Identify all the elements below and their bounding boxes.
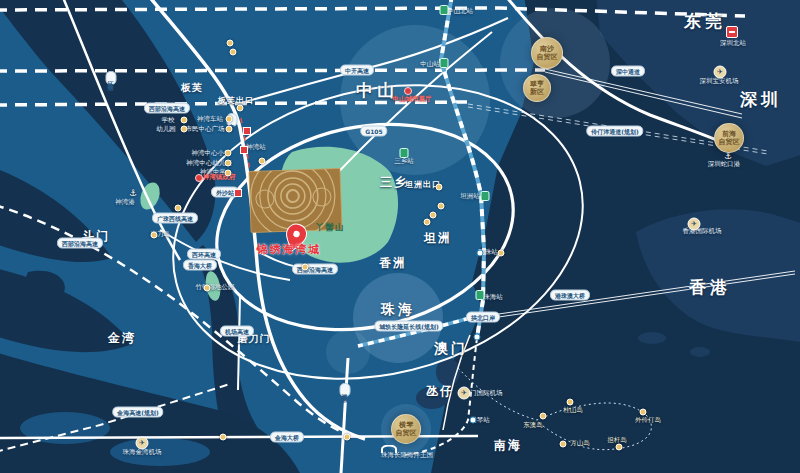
gold-icon [225,160,232,167]
green-icon [481,191,490,201]
road-guangzhuxixian: 广珠西线高速 [152,213,198,224]
road-honghe-bridge: 洪鹤大桥 [340,383,351,397]
gold-icon [204,285,211,292]
road-xianghai-bridge: 香海大桥 [183,260,217,271]
zone-cuiheng: 翠亨新区 [523,74,551,102]
gold-icon [344,434,351,441]
green-icon [440,58,449,68]
dolphin-icon [381,445,397,454]
green-icon [476,290,485,300]
gold-icon [175,205,182,212]
station-shenzhenbei: 深圳北站 [720,39,746,48]
road-jinhai-bridge: 金海大桥 [270,432,304,443]
road-xibuyanhai: 西部沿海高速 [144,103,190,114]
gold-icon [498,250,505,257]
region-zhuhai: 珠海 [381,301,415,319]
plane-icon: ✈ [714,66,727,79]
road-jiangzhu: 江珠高速 [106,71,117,85]
station-zhongshanbei: 中山北站 [447,7,473,16]
road-jinhai-planned: 金海高速(规划) [112,407,163,418]
region-macau: 澳门 [434,340,468,358]
plane-icon: ✈ [688,218,701,231]
gold-icon [436,184,443,191]
region-sanxiang: 三乡 [380,174,408,191]
road-shenzhong-link: 深中通道 [611,66,645,77]
road-g105: G105 [360,126,387,137]
zone-qianhai: 前海自贸区 [714,123,744,153]
island-wanshan: 万山岛 [570,439,590,448]
gold-icon [181,126,188,133]
road-xibuyanhai-2: 西部沿海高速 [57,238,103,249]
rail-icon [477,250,484,257]
green-icon [400,148,409,158]
poi-zhuyin-park: 竹银湿地公园 [196,283,235,292]
project-name: 锦绣海湾城 [257,242,322,257]
gold-icon [430,212,437,219]
gongbei-port: 拱北口岸 [466,312,500,323]
reddot-icon [195,174,203,182]
rail-icon [470,417,477,424]
reddot-icon [404,87,412,95]
poi-school: 学校 [162,116,175,125]
gold-icon [226,116,233,123]
red-poi-zhongshan-hall: 中山城市展厅 [393,95,432,104]
gold-icon [226,126,233,133]
green-icon [440,5,449,15]
gold-icon [181,117,188,124]
mountain-yajishan: 丫髻山 [316,222,345,234]
gold-icon [230,49,237,56]
redsq-icon [234,189,242,197]
rail-icon [474,334,481,341]
region-tanzhou: 坦洲 [424,230,452,247]
poi-shenwan-bus: 神湾车站 [197,115,223,124]
gold-icon [560,441,567,448]
gold-icon [424,219,431,226]
redsq-icon [243,127,251,135]
location-map: 东莞深圳香港中山珠海澳门斗门金湾南海三乡坦洲香洲氹仔板芙磨刀门板芙出口坦洲出口西… [0,0,800,473]
gold-icon [220,434,227,441]
gold-icon [225,170,232,177]
region-banfu: 板芙 [181,81,203,95]
station-zhuhai: 珠海站 [483,293,503,302]
region-jinwan: 金湾 [108,330,136,347]
zone-hengqin: 横琴自贸区 [391,414,421,444]
plane-icon: ✈ [136,437,149,450]
label-layer: 东莞深圳香港中山珠海澳门斗门金湾南海三乡坦洲香洲氹仔板芙磨刀门板芙出口坦洲出口西… [0,0,800,473]
road-xibuyanhai-3: 西部沿海高速 [292,264,338,275]
gold-icon [640,409,647,416]
region-dongguan: 东莞 [684,10,726,33]
road-lingdingyang: 伶仃洋通道(规划) [586,126,643,137]
gold-icon [259,158,266,165]
region-xiangzhou: 香洲 [379,255,407,272]
island-guishan: 桂山岛 [563,406,583,415]
road-zhongkai: 中开高速 [340,65,374,76]
island-dongao: 东澳岛 [523,421,543,430]
exit-banfu: 板芙出口 [218,95,254,106]
plane-icon: ✈ [458,387,471,400]
station-tanzhou: 坦洲站 [460,192,480,201]
gold-icon [567,399,574,406]
region-nanhai: 南海 [494,437,522,454]
road-hzmb: 港珠澳大桥 [550,290,590,301]
anchor-icon: ⚓ [129,189,137,198]
road-xihuan: 西环高速 [187,249,221,260]
road-jichang: 机场高速 [220,326,254,337]
island-wailingding: 外伶仃岛 [635,416,661,425]
gold-icon [151,232,158,239]
region-shenzhen: 深圳 [740,88,782,111]
gold-icon [302,264,309,271]
gold-icon [227,40,234,47]
poi-civic-plaza: 市民中心广场 [186,125,225,134]
redsq-icon [240,146,248,154]
gold-icon [438,203,445,210]
gold-icon [237,105,244,112]
anchor-icon: ⚓ [724,152,732,161]
station-shenwan: 神湾站 [246,143,266,152]
poi-kindergarten: 幼儿园 [156,125,176,134]
zone-nansha: 南沙自贸区 [531,37,563,69]
poi-shekou-port: 深圳蛇口港 [708,160,741,169]
region-dangzai: 氹仔 [426,383,454,400]
station-zhongshan: 中山站 [420,60,440,69]
rail-changlong-ext: 城轨长隆延长线(规划) [374,321,443,332]
gold-icon [540,413,547,420]
gold-icon [616,444,623,451]
gold-icon [225,150,232,157]
train-icon [726,26,738,38]
poi-shenwan-port: 神湾港 [115,198,135,207]
region-hongkong: 香港 [689,276,731,299]
